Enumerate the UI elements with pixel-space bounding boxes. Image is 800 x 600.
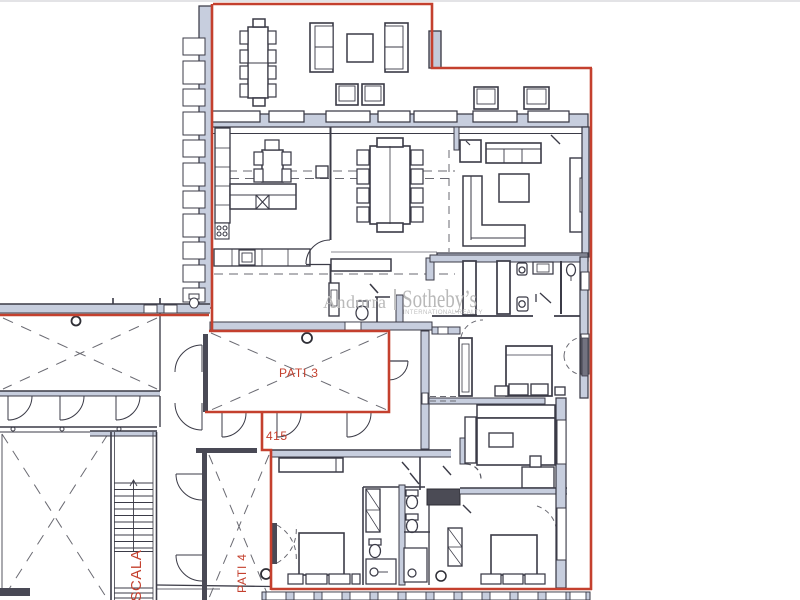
svg-text:PATI 3: PATI 3 — [279, 366, 319, 380]
svg-text:Sotheby’s: Sotheby’s — [402, 284, 477, 312]
svg-text:Andorra: Andorra — [323, 292, 386, 312]
svg-text:ESCALA: ESCALA — [128, 550, 145, 600]
svg-text:PATI 4: PATI 4 — [235, 553, 249, 593]
svg-text:415: 415 — [266, 429, 288, 443]
svg-text:INTERNATIONAL REALTY: INTERNATIONAL REALTY — [403, 310, 483, 316]
